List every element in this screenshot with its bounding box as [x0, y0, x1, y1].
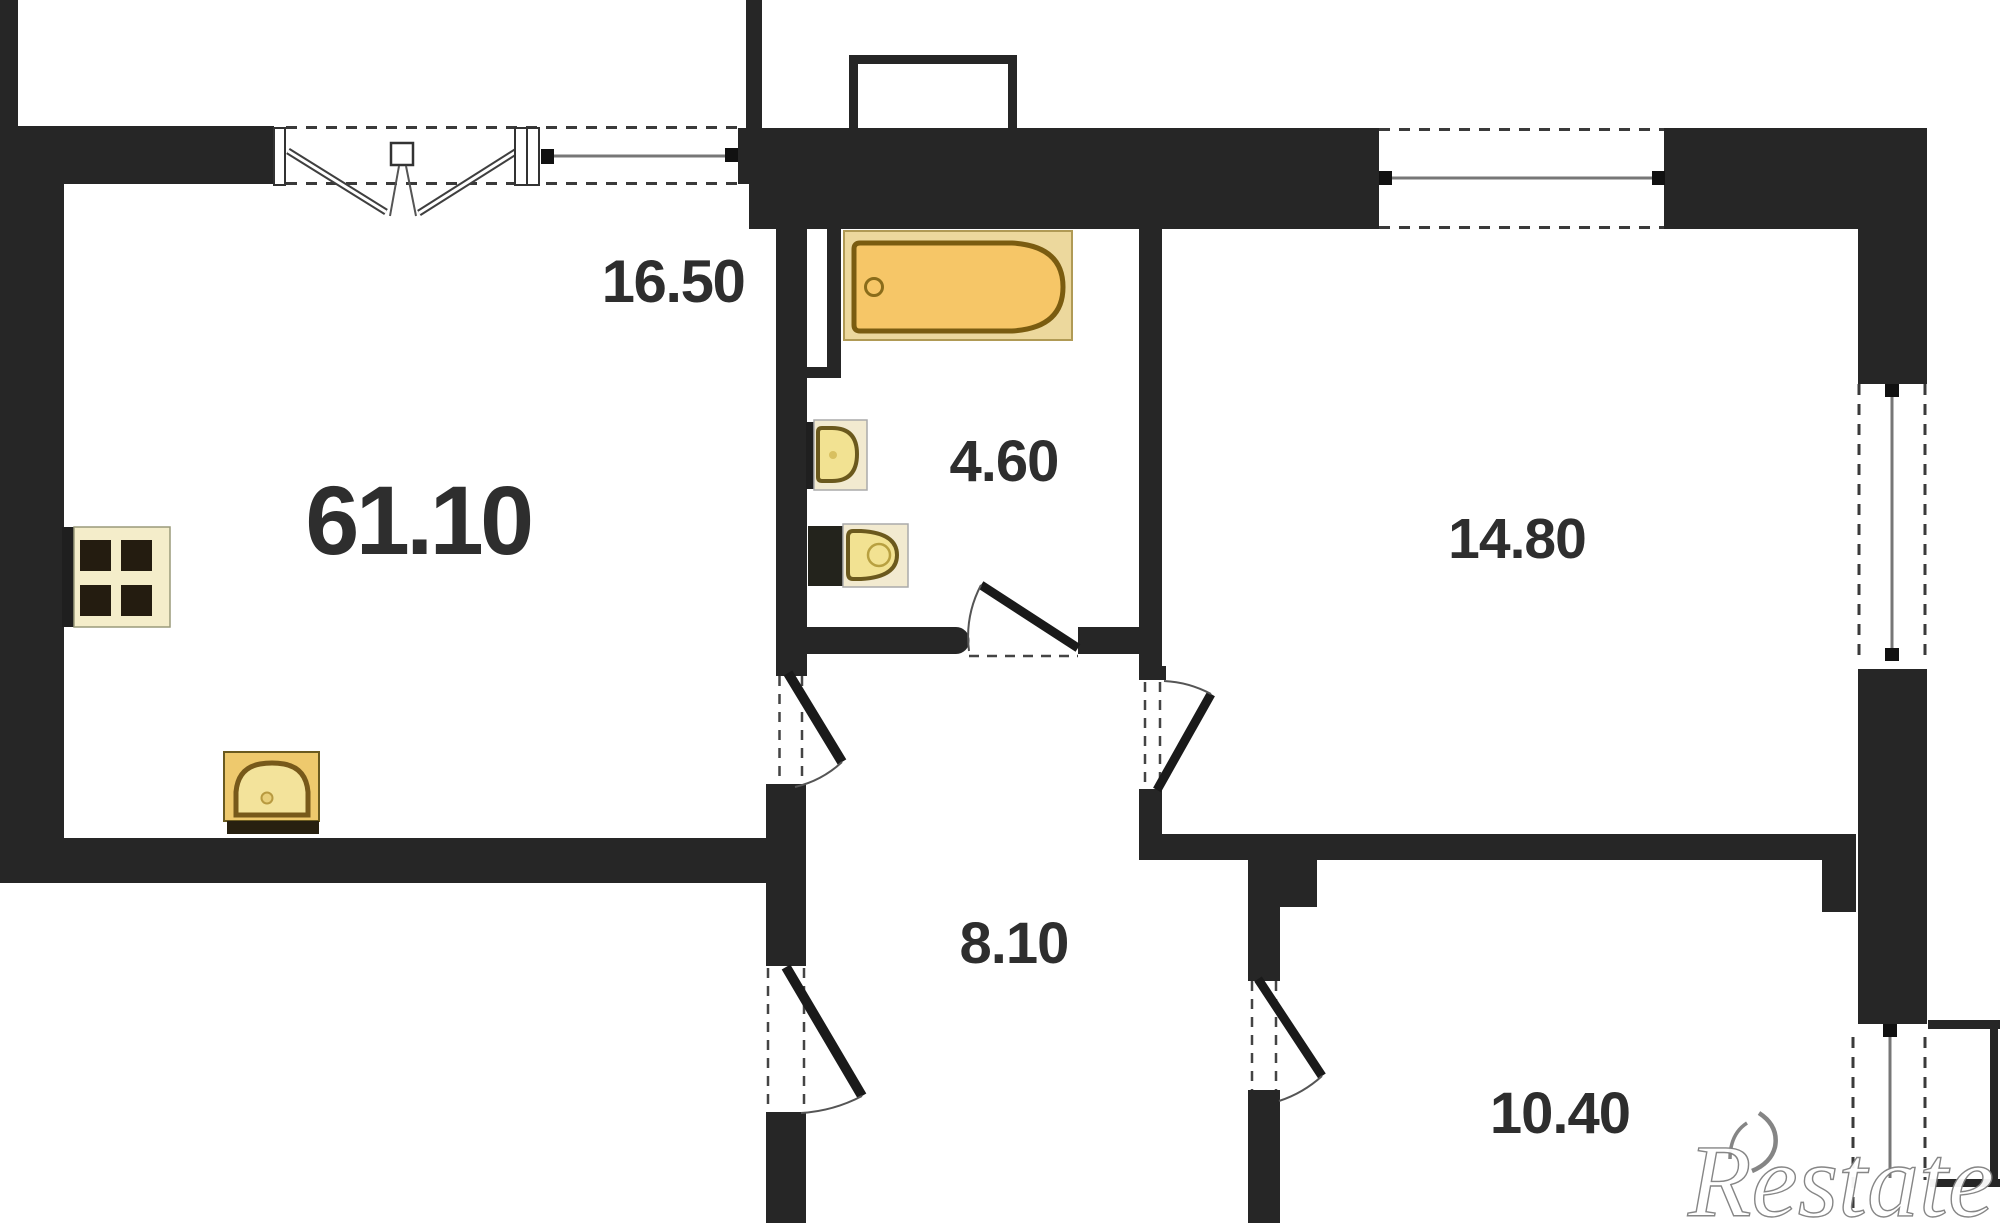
svg-text:16.50: 16.50 — [602, 248, 745, 315]
svg-text:4.60: 4.60 — [950, 429, 1059, 494]
svg-text:61.10: 61.10 — [305, 466, 530, 575]
svg-text:Restate: Restate — [1687, 1124, 1994, 1223]
svg-text:14.80: 14.80 — [1448, 507, 1586, 571]
svg-text:10.40: 10.40 — [1490, 1081, 1630, 1146]
svg-text:8.10: 8.10 — [960, 911, 1069, 976]
